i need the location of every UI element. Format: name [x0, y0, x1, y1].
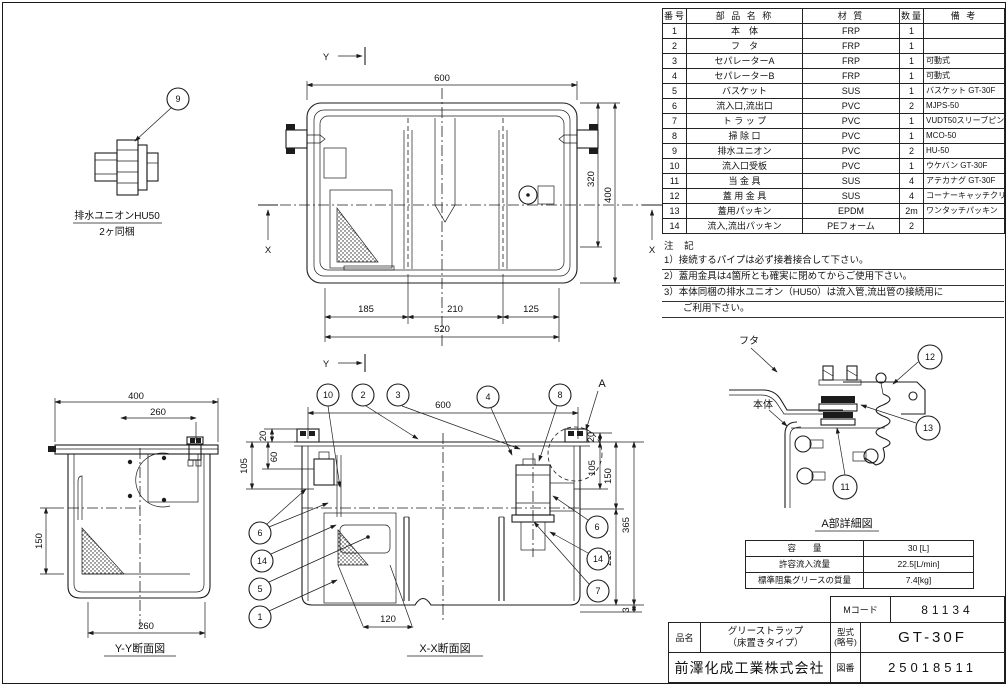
spec-row: 標準阻集グリースの質量7.4[kg] [746, 573, 974, 589]
table-cell: 当 金 具 [687, 174, 803, 189]
drawing-no-label: 図番 [830, 652, 861, 683]
table-cell: 7 [663, 114, 687, 129]
table-cell: 9 [663, 144, 687, 159]
body-bolts [795, 436, 878, 484]
table-cell: HU-50 [924, 144, 1005, 159]
yy-caption: Y-Y断面図 [104, 641, 176, 656]
table-row: 10流入口受板PVC1ウケバン GT-30F [663, 159, 1005, 174]
table-cell: 1 [900, 84, 924, 99]
table-cell: PVC [803, 114, 900, 129]
section-marker-y-bottom: Y [323, 354, 365, 372]
plan-view-drawing: Y 600 [250, 40, 670, 380]
column-header: 数量 [900, 9, 924, 24]
table-cell: 6 [663, 99, 687, 114]
body-wall-outline [785, 422, 885, 508]
balloon-12: 12 [893, 345, 942, 384]
xx-tank-outline [294, 429, 590, 620]
model-label: 型式(略号) [830, 622, 861, 653]
table-cell: 1 [900, 24, 924, 39]
xx-trap-assembly [512, 453, 574, 557]
svg-text:11: 11 [840, 482, 849, 492]
table-cell [924, 39, 1005, 54]
table-cell: MCO-50 [924, 129, 1005, 144]
table-cell: SUS [803, 84, 900, 99]
svg-text:20: 20 [586, 432, 597, 443]
xx-separators [404, 517, 504, 601]
spec-row: 容 量30 [L] [746, 541, 974, 557]
table-cell: PVC [803, 129, 900, 144]
dims-left-xx: 20 60 105 [239, 429, 314, 489]
table-cell: 流入口受板 [687, 159, 803, 174]
svg-text:6: 6 [257, 528, 262, 538]
title-block: Mコード 81134 品名 グリーストラップ （床置きタイプ） 型式(略号) G… [668, 596, 1005, 683]
svg-text:400: 400 [128, 391, 144, 402]
table-cell: 1 [663, 24, 687, 39]
union-fitting-outline [95, 140, 158, 195]
spec-table: 容 量30 [L]許容流入流量22.5[L/min]標準阻集グリースの質量7.4… [745, 540, 974, 589]
column-header: 備 考 [924, 9, 1005, 24]
table-cell: 4 [900, 174, 924, 189]
table-cell: 1 [900, 129, 924, 144]
table-cell: 可動式 [924, 69, 1005, 84]
spec-label: 標準阻集グリースの質量 [746, 573, 864, 589]
spec-value: 30 [L] [864, 541, 974, 557]
table-cell [924, 219, 1005, 234]
note-line: 1）接続するパイプは必ず接着接合して下さい。 [662, 254, 1004, 270]
table-cell: VUDT50スリーブピン [924, 114, 1005, 129]
svg-text:2: 2 [360, 390, 365, 400]
svg-text:125: 125 [523, 304, 539, 315]
table-cell: ワンタッチパッキン [924, 204, 1005, 219]
yy-lid [48, 437, 218, 466]
union-label: 排水ユニオンHU50 2ヶ同梱 [73, 209, 162, 238]
column-header: 材 質 [803, 9, 900, 24]
spec-row: 許容流入流量22.5[L/min] [746, 557, 974, 573]
table-row: 3セパレーターAFRP1可動式 [663, 54, 1005, 69]
drawing-no-value: 25018511 [860, 652, 1005, 683]
table-cell: MJPS-50 [924, 99, 1005, 114]
table-cell: 10 [663, 159, 687, 174]
table-cell: セパレーターA [687, 54, 803, 69]
table-cell: 2 [900, 99, 924, 114]
notes-title: 注 記 [664, 238, 1004, 252]
svg-text:14: 14 [593, 554, 603, 564]
table-cell: SUS [803, 174, 900, 189]
table-cell: 排水ユニオン [687, 144, 803, 159]
balloon-10: 10 [317, 384, 340, 487]
table-row: 9排水ユニオンPVC2HU-50 [663, 144, 1005, 159]
table-row: 11当 金 具SUS4アテカナグ GT-30F [663, 174, 1005, 189]
table-cell: PVC [803, 144, 900, 159]
svg-text:6: 6 [594, 522, 599, 532]
svg-text:A部詳細図: A部詳細図 [821, 516, 872, 530]
svg-text:4: 4 [485, 392, 490, 402]
parts-table-header-row: 番号部 品 名 称材 質数量備 考 [663, 9, 1005, 24]
svg-text:520: 520 [434, 324, 450, 335]
svg-text:Y: Y [323, 52, 330, 63]
svg-text:600: 600 [434, 73, 450, 84]
table-row: 1本 体FRP1 [663, 24, 1005, 39]
table-row: 5バスケットSUS1バスケット GT-30F [663, 84, 1005, 99]
svg-text:400: 400 [603, 187, 614, 203]
svg-text:3: 3 [621, 607, 632, 612]
spec-table-body: 容 量30 [L]許容流入流量22.5[L/min]標準阻集グリースの質量7.4… [746, 541, 974, 589]
svg-text:120: 120 [380, 614, 396, 625]
table-cell: FRP [803, 24, 900, 39]
yy-section-drawing: 400 260 [30, 390, 260, 675]
table-row: 14流入,流出パッキンPEフォーム2 [663, 219, 1005, 234]
column-header: 部 品 名 称 [687, 9, 803, 24]
svg-text:20: 20 [258, 431, 269, 442]
detail-a-drawing: フタ 本体 [725, 330, 1005, 545]
table-cell: 13 [663, 204, 687, 219]
table-cell: 1 [900, 114, 924, 129]
dim-260-top: 260 [121, 407, 196, 440]
svg-text:320: 320 [586, 171, 597, 187]
table-cell: 2m [900, 204, 924, 219]
m-code-value: 81134 [890, 596, 1005, 623]
part-name-line2: （床置きタイプ） [727, 638, 803, 649]
column-header: 番号 [663, 9, 687, 24]
plan-inlet-pipe [286, 124, 325, 154]
balloon-4: 4 [477, 386, 512, 455]
dim-120-bottom: 120 [363, 614, 413, 627]
table-cell: PEフォーム [803, 219, 900, 234]
spec-value: 7.4[kg] [864, 573, 974, 589]
section-marker-y-top: Y [323, 47, 365, 65]
yy-body [68, 448, 210, 626]
table-cell: コーナーキャッチクリップ [924, 189, 1005, 204]
notes-lines: 1）接続するパイプは必ず接着接合して下さい。2）蓋用金具は4箇所とも確実に閉めて… [662, 254, 1004, 318]
table-cell: PVC [803, 99, 900, 114]
svg-text:10: 10 [323, 390, 333, 400]
svg-text:105: 105 [239, 458, 250, 474]
table-cell: 3 [663, 54, 687, 69]
table-cell: 1 [900, 39, 924, 54]
svg-text:150: 150 [34, 533, 45, 549]
union-label-line2: 2ヶ同梱 [99, 225, 135, 238]
union-detail-drawing: 9 排水ユニオンHU50 2ヶ同梱 [55, 35, 245, 245]
table-cell: ウケバン GT-30F [924, 159, 1005, 174]
dims-right-xx: 20 105 150 365 215 3 [574, 432, 644, 613]
balloon-9: 9 [135, 88, 189, 141]
table-row: 6流入口,流出口PVC2MJPS-50 [663, 99, 1005, 114]
svg-text:12: 12 [925, 352, 935, 362]
part-name-value: グリーストラップ （床置きタイプ） [700, 622, 831, 653]
table-cell: 2 [900, 144, 924, 159]
table-cell: 流入,流出パッキン [687, 219, 803, 234]
model-value: GT-30F [860, 622, 1005, 653]
table-cell: 12 [663, 189, 687, 204]
balloon-8: 8 [539, 384, 571, 461]
svg-text:260: 260 [150, 407, 166, 418]
table-cell: 4 [900, 189, 924, 204]
svg-text:7: 7 [595, 586, 600, 596]
table-cell: EPDM [803, 204, 900, 219]
svg-text:Y-Y断面図: Y-Y断面図 [115, 641, 165, 655]
table-cell: 8 [663, 129, 687, 144]
table-cell: 14 [663, 219, 687, 234]
part-name-label: 品名 [668, 622, 701, 653]
svg-text:365: 365 [621, 517, 632, 533]
dim-260-bottom: 260 [88, 602, 205, 638]
table-cell: セパレーターB [687, 69, 803, 84]
svg-text:150: 150 [603, 468, 614, 484]
xx-basket [324, 513, 412, 626]
svg-text:フタ: フタ [739, 335, 759, 347]
m-code-label: Mコード [830, 596, 891, 623]
detail-a-caption: A部詳細図 [815, 516, 879, 531]
svg-text:260: 260 [138, 621, 154, 632]
table-cell: 11 [663, 174, 687, 189]
parts-table-body: 1本 体FRP12フ タFRP13セパレーターAFRP1可動式4セパレーターBF… [663, 24, 1005, 234]
table-cell: 2 [663, 39, 687, 54]
table-cell: 流入口,流出口 [687, 99, 803, 114]
table-cell [924, 24, 1005, 39]
balloon-13: 13 [861, 405, 940, 440]
svg-text:Y: Y [323, 359, 330, 370]
table-cell: 1 [900, 159, 924, 174]
svg-text:X: X [649, 245, 656, 256]
plan-outlet-pipe [559, 124, 598, 154]
svg-text:X: X [265, 245, 272, 256]
svg-text:60: 60 [269, 452, 280, 463]
section-line-x: X X [258, 205, 662, 256]
spec-label: 容 量 [746, 541, 864, 557]
spec-value: 22.5[L/min] [864, 557, 974, 573]
table-row: 7ト ラ ッ プPVC1VUDT50スリーブピン [663, 114, 1005, 129]
company-name: 前澤化成工業株式会社 [668, 652, 831, 683]
svg-text:8: 8 [557, 390, 562, 400]
table-cell: アテカナグ GT-30F [924, 174, 1005, 189]
table-cell: 1 [900, 54, 924, 69]
svg-text:A: A [598, 378, 606, 390]
table-row: 8掃 除 口PVC1MCO-50 [663, 129, 1005, 144]
balloon-number: 9 [175, 94, 180, 104]
table-cell: 蓋 用 金 具 [687, 189, 803, 204]
table-row: 4セパレーターBFRP1可動式 [663, 69, 1005, 84]
notes-section: 注 記 1）接続するパイプは必ず接着接合して下さい。2）蓋用金具は4箇所とも確実… [662, 238, 1004, 318]
svg-text:13: 13 [923, 423, 933, 433]
table-cell: バスケット [687, 84, 803, 99]
table-cell: フ タ [687, 39, 803, 54]
note-line: ご利用下さい。 [662, 302, 1004, 318]
table-cell: 1 [900, 69, 924, 84]
svg-text:5: 5 [257, 584, 262, 594]
table-cell: FRP [803, 69, 900, 84]
table-cell: 本 体 [687, 24, 803, 39]
table-row: 12蓋 用 金 具SUS4コーナーキャッチクリップ [663, 189, 1005, 204]
table-cell: FRP [803, 39, 900, 54]
union-label-line1: 排水ユニオンHU50 [74, 209, 160, 222]
dim-400-top: 400 [55, 391, 218, 442]
note-line: 2）蓋用金具は4箇所とも確実に閉めてからご使用下さい。 [662, 270, 1004, 286]
drawing-sheet: 9 排水ユニオンHU50 2ヶ同梱 Y [0, 0, 1008, 686]
part-name-line1: グリーストラップ [728, 626, 804, 637]
table-cell: 4 [663, 69, 687, 84]
svg-text:185: 185 [358, 304, 374, 315]
lid-label: フタ [739, 335, 777, 372]
svg-text:105: 105 [587, 460, 598, 476]
dim-150-left: 150 [34, 508, 64, 574]
table-cell: バスケット GT-30F [924, 84, 1005, 99]
svg-text:3: 3 [395, 390, 400, 400]
table-cell: 掃 除 口 [687, 129, 803, 144]
clamp-stack [819, 396, 857, 425]
table-cell: 5 [663, 84, 687, 99]
table-cell: 可動式 [924, 54, 1005, 69]
parts-table: 番号部 品 名 称材 質数量備 考 1本 体FRP12フ タFRP13セパレータ… [662, 8, 1005, 234]
table-cell: PVC [803, 159, 900, 174]
svg-text:14: 14 [257, 556, 267, 566]
table-cell: FRP [803, 54, 900, 69]
xx-caption: X-X断面図 [407, 641, 483, 656]
table-cell: 蓋用パッキン [687, 204, 803, 219]
svg-text:本体: 本体 [753, 398, 773, 411]
table-row: 2フ タFRP1 [663, 39, 1005, 54]
table-row: 13蓋用パッキンEPDM2mワンタッチパッキン [663, 204, 1005, 219]
table-cell: SUS [803, 189, 900, 204]
note-line: 3）本体同梱の排水ユニオン（HU50）は流入管,流出管の接続用に [662, 286, 1004, 302]
xx-section-drawing: 600 10 2 3 4 8 A [240, 375, 670, 670]
spec-label: 許容流入流量 [746, 557, 864, 573]
svg-text:600: 600 [435, 400, 451, 411]
svg-text:210: 210 [447, 304, 463, 315]
table-cell: ト ラ ッ プ [687, 114, 803, 129]
balloon-3: 3 [387, 384, 520, 449]
spring [865, 373, 890, 465]
svg-text:X-X断面図: X-X断面図 [419, 641, 470, 655]
balloon-11: 11 [833, 428, 857, 499]
svg-text:1: 1 [257, 612, 262, 622]
table-cell: 2 [900, 219, 924, 234]
